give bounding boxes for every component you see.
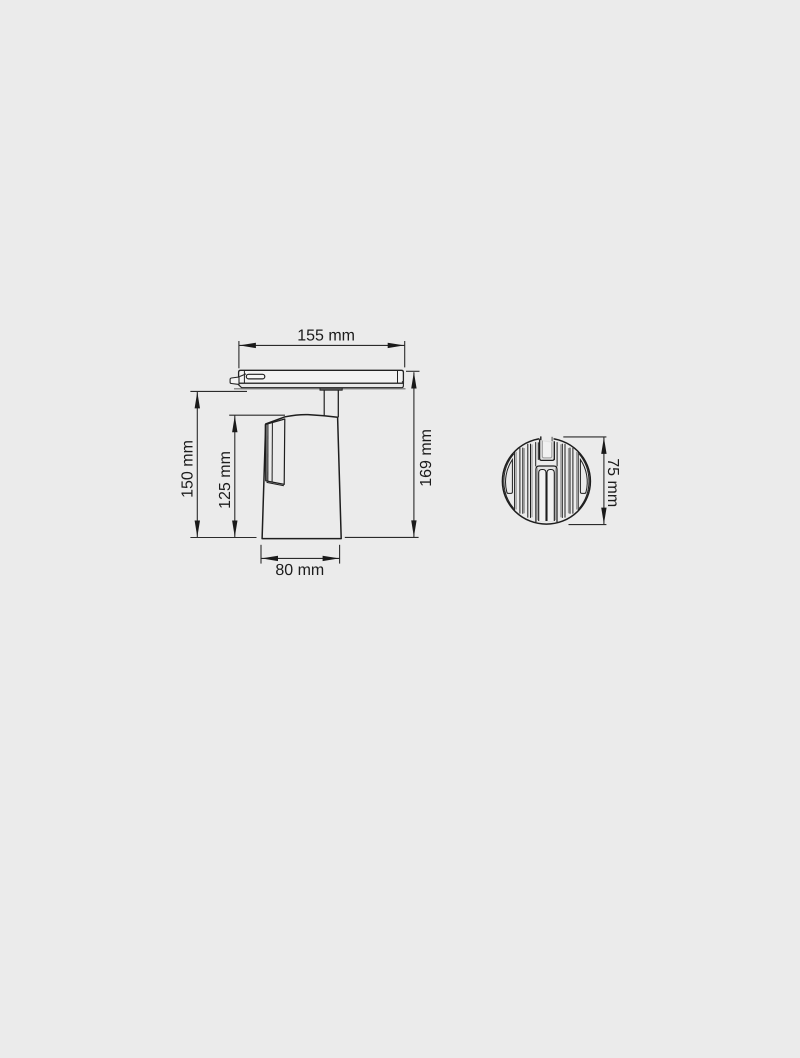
svg-text:80 mm: 80 mm (275, 562, 324, 579)
svg-text:75 mm: 75 mm (604, 458, 621, 507)
svg-text:155 mm: 155 mm (297, 328, 355, 345)
svg-text:169 mm: 169 mm (418, 429, 435, 487)
svg-text:125 mm: 125 mm (217, 451, 234, 509)
svg-text:150 mm: 150 mm (180, 440, 197, 498)
